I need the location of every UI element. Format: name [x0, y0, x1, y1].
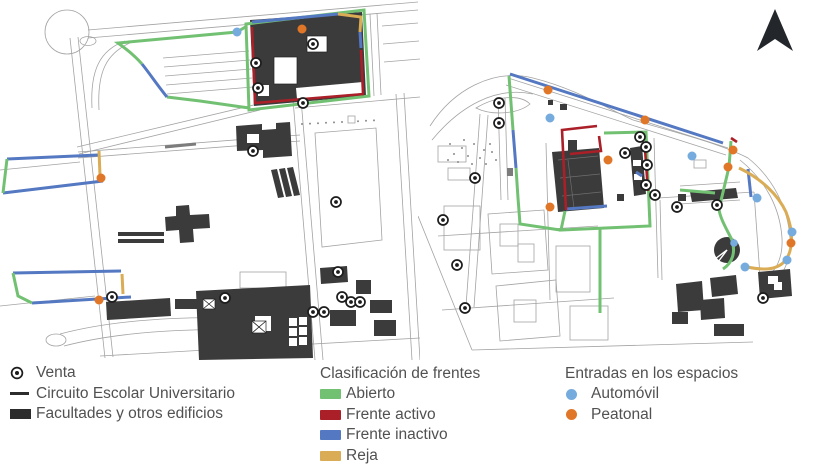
- legend-label: Frente activo: [346, 406, 436, 424]
- line-swatch-icon: [10, 392, 36, 395]
- building-swatch-icon: [10, 409, 36, 419]
- automovil-dot-icon: [565, 389, 591, 400]
- inactivo-swatch-icon: [320, 430, 346, 440]
- legend-entradas: Entradas en los espacios Automóvil Peato…: [565, 363, 738, 425]
- legend-label: Peatonal: [591, 406, 652, 424]
- north-arrow-icon: [753, 6, 797, 54]
- legend-item-circuito: Circuito Escolar Universitario: [10, 384, 235, 405]
- right-map: [418, 48, 817, 360]
- legend-label: Facultades y otros edificios: [36, 405, 223, 423]
- legend-item-frente-activo: Frente activo: [320, 405, 480, 426]
- legend-label: Frente inactivo: [346, 426, 448, 444]
- legend-frentes: Clasificación de frentes Abierto Frente …: [320, 363, 480, 466]
- activo-swatch-icon: [320, 410, 346, 420]
- right-dotted-texture: [447, 139, 497, 165]
- legend-item-frente-inactivo: Frente inactivo: [320, 425, 480, 446]
- reja-swatch-icon: [320, 451, 346, 461]
- legend-item-abierto: Abierto: [320, 384, 480, 405]
- legend-label: Venta: [36, 364, 76, 382]
- legend-item-facultades: Facultades y otros edificios: [10, 404, 235, 425]
- legend-label: Automóvil: [591, 385, 659, 403]
- legend-general: Venta Circuito Escolar Universitario Fac…: [10, 363, 235, 425]
- legend-label: Circuito Escolar Universitario: [36, 385, 235, 403]
- right-route-inactivo: [510, 74, 751, 209]
- map-figure: Venta Circuito Escolar Universitario Fac…: [0, 0, 817, 468]
- legend: Venta Circuito Escolar Universitario Fac…: [0, 363, 817, 468]
- left-dotted-row: [301, 119, 375, 125]
- legend-item-automovil: Automóvil: [565, 384, 738, 405]
- abierto-swatch-icon: [320, 389, 346, 399]
- venta-icon: [10, 366, 36, 380]
- legend-item-peatonal: Peatonal: [565, 405, 738, 426]
- peatonal-dot-icon: [565, 409, 591, 420]
- right-road-network: [418, 76, 790, 350]
- legend-frentes-title: Clasificación de frentes: [320, 363, 480, 384]
- right-route-reja: [739, 168, 792, 269]
- left-route-abierto-pockets: [3, 159, 32, 303]
- legend-entradas-title: Entradas en los espacios: [565, 363, 738, 384]
- left-map: [0, 0, 420, 362]
- legend-item-reja: Reja: [320, 446, 480, 467]
- legend-item-venta: Venta: [10, 363, 235, 384]
- legend-label: Abierto: [346, 385, 395, 403]
- legend-label: Reja: [346, 447, 378, 465]
